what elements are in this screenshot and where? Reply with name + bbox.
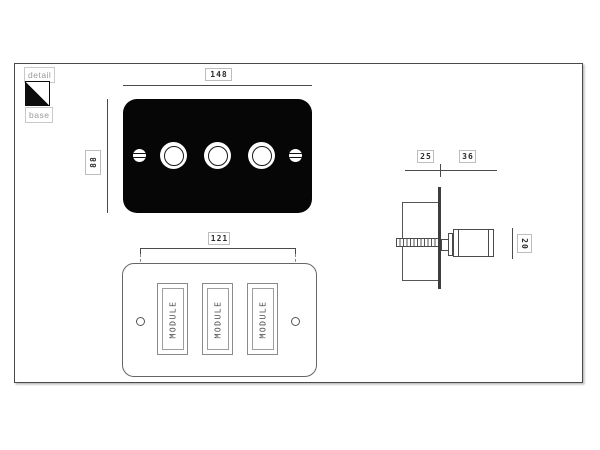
screw-slot (133, 153, 146, 154)
knob-ring (208, 146, 228, 166)
dim-line-knob-diameter (512, 228, 513, 259)
screw-slot (289, 153, 302, 154)
screw-left-icon (133, 149, 146, 162)
legend-base-label: base (25, 107, 53, 123)
dimmer-knob-3 (248, 142, 275, 169)
dim-tick-middle (440, 164, 441, 177)
detail-base-swatch-icon (25, 81, 50, 106)
dim-line-side-top (405, 170, 497, 171)
dim-label-fixing-centres: 121 (208, 232, 230, 245)
knob-ring (164, 146, 184, 166)
wallplate-edge-side-view (438, 187, 441, 289)
knob-side-view (453, 229, 494, 257)
module-slot-1: MODULE (157, 283, 188, 355)
dim-label-box-depth: 25 (417, 150, 434, 163)
dim-line-plate-width (123, 85, 312, 86)
screw-slot (289, 157, 302, 158)
threaded-rod-icon (396, 238, 439, 247)
dim-line-plate-height (107, 99, 108, 213)
module-frame: MODULE (252, 288, 274, 350)
screw-right-icon (289, 149, 302, 162)
knob-chamfer-line (458, 230, 459, 256)
knob-ring (252, 146, 272, 166)
screw-slot (133, 157, 146, 158)
dim-line-fixing-centres (140, 248, 296, 249)
module-slot-2: MODULE (202, 283, 233, 355)
module-frame: MODULE (207, 288, 229, 350)
dimmer-knob-1 (160, 142, 187, 169)
screw-hole-right-icon (291, 317, 300, 326)
dimmer-knob-2 (204, 142, 231, 169)
knob-chamfer-line (488, 230, 489, 256)
dim-label-knob-diameter: 20 (517, 234, 532, 253)
dim-label-plate-width: 148 (205, 68, 232, 81)
dim-label-knob-projection: 36 (459, 150, 476, 163)
screw-hole-left-icon (136, 317, 145, 326)
module-frame: MODULE (162, 288, 184, 350)
drawing-canvas: detail base 148 88 121 (0, 0, 600, 450)
faceplate-detail-view (123, 99, 312, 213)
dim-label-plate-height: 88 (85, 150, 101, 175)
module-slot-3: MODULE (247, 283, 278, 355)
